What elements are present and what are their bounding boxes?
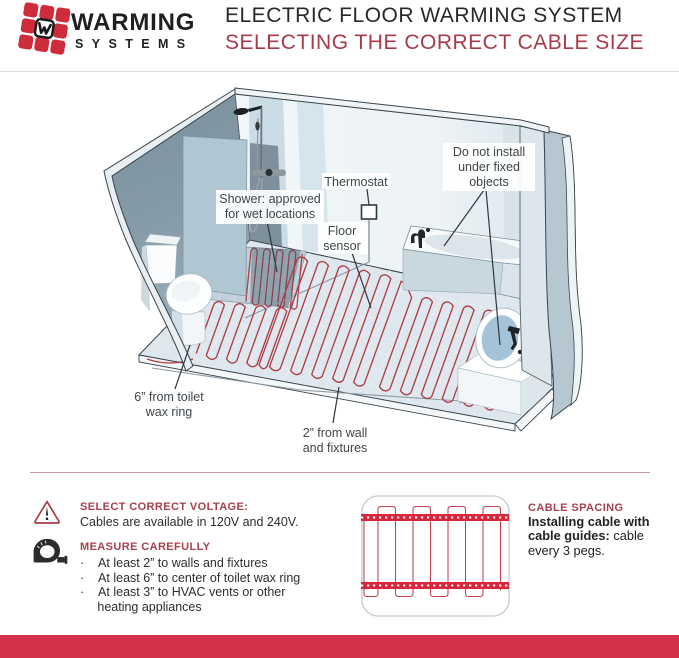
svg-text:Shower: approved: Shower: approved: [219, 192, 321, 206]
svg-text:Floor: Floor: [328, 224, 356, 238]
svg-text:for wet locations: for wet locations: [225, 207, 315, 221]
svg-text:under fixed: under fixed: [458, 160, 520, 174]
svg-text:objects: objects: [469, 175, 509, 189]
svg-text:and fixtures: and fixtures: [303, 441, 368, 455]
svg-text:wax ring: wax ring: [145, 405, 193, 419]
svg-text:6” from toilet: 6” from toilet: [134, 390, 204, 404]
svg-text:2” from wall: 2” from wall: [303, 426, 368, 440]
svg-text:sensor: sensor: [323, 239, 361, 253]
svg-text:Do not install: Do not install: [453, 145, 525, 159]
svg-text:Thermostat: Thermostat: [324, 175, 388, 189]
